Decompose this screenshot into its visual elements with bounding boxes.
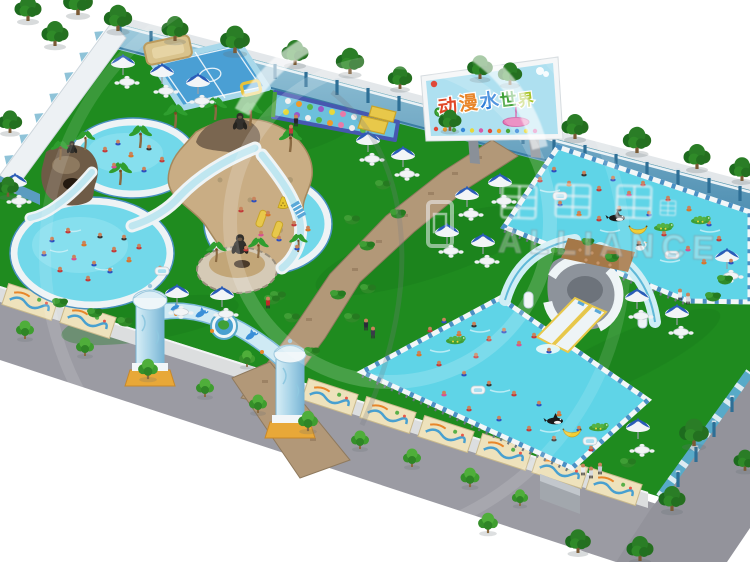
post xyxy=(707,177,711,194)
watermark-text-en: ALLIANCE xyxy=(498,222,722,267)
post xyxy=(738,185,742,202)
billboard-leg-left xyxy=(468,138,480,164)
post xyxy=(712,421,716,438)
post xyxy=(397,95,401,112)
raft xyxy=(583,437,597,445)
post xyxy=(676,169,680,186)
water-park-render: 动 漫 水 世 界 xyxy=(0,0,750,562)
post xyxy=(730,396,734,413)
post xyxy=(366,87,370,104)
raft xyxy=(155,267,169,275)
post xyxy=(676,471,680,488)
water-park-scene: 动 漫 水 世 界 xyxy=(0,0,750,562)
tree xyxy=(15,0,42,25)
raft xyxy=(471,386,485,394)
